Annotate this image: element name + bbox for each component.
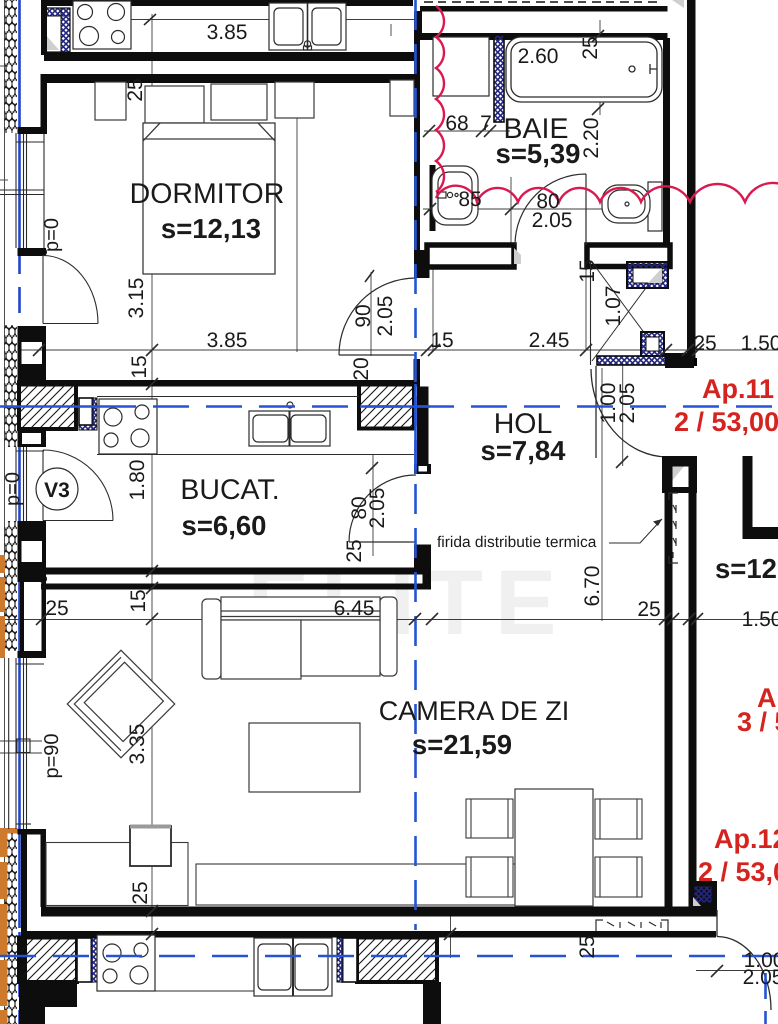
svg-text:3.35: 3.35 xyxy=(126,724,149,765)
svg-text:25: 25 xyxy=(693,332,716,355)
svg-text:6.70: 6.70 xyxy=(581,566,604,607)
svg-text:25: 25 xyxy=(637,598,660,621)
svg-text:Ap.11: Ap.11 xyxy=(702,374,774,404)
svg-text:68: 68 xyxy=(445,112,468,135)
svg-text:2.05: 2.05 xyxy=(616,383,639,424)
svg-text:s=12,13: s=12,13 xyxy=(161,213,261,244)
svg-text:2.05: 2.05 xyxy=(743,966,778,989)
svg-text:CAMERA DE ZI: CAMERA DE ZI xyxy=(379,696,570,726)
svg-text:85: 85 xyxy=(458,188,481,211)
svg-text:6.45: 6.45 xyxy=(334,597,375,620)
svg-text:s=5,39: s=5,39 xyxy=(496,138,581,169)
svg-text:s=7,84: s=7,84 xyxy=(481,435,567,466)
svg-text:3.85: 3.85 xyxy=(207,329,248,352)
svg-text:2.60: 2.60 xyxy=(518,45,559,68)
svg-text:BUCAT.: BUCAT. xyxy=(180,474,279,506)
svg-text:2.05: 2.05 xyxy=(366,488,389,529)
svg-text:25: 25 xyxy=(343,539,366,562)
svg-text:2.20: 2.20 xyxy=(580,118,603,159)
svg-text:p=0: p=0 xyxy=(2,472,24,506)
svg-text:2.05: 2.05 xyxy=(532,209,573,232)
svg-text:2.45: 2.45 xyxy=(529,329,570,352)
svg-text:3.15: 3.15 xyxy=(125,278,148,319)
svg-text:1.50: 1.50 xyxy=(741,332,778,355)
svg-text:Ap.12: Ap.12 xyxy=(714,824,778,854)
svg-text:25: 25 xyxy=(124,78,147,101)
svg-text:20: 20 xyxy=(350,357,373,380)
svg-text:25: 25 xyxy=(579,36,602,59)
svg-text:firida distributie termica: firida distributie termica xyxy=(437,534,597,551)
svg-text:15: 15 xyxy=(576,259,599,282)
svg-text:3.85: 3.85 xyxy=(207,21,248,44)
svg-text:25: 25 xyxy=(576,935,599,958)
svg-text:p=0: p=0 xyxy=(41,218,63,252)
svg-text:1.07: 1.07 xyxy=(602,286,625,327)
svg-text:s=12,: s=12, xyxy=(715,553,778,584)
svg-text:1.80: 1.80 xyxy=(126,460,149,501)
svg-text:V3: V3 xyxy=(44,479,70,502)
svg-text:p=90: p=90 xyxy=(41,733,63,778)
svg-text:s=21,59: s=21,59 xyxy=(412,729,512,760)
svg-text:25: 25 xyxy=(45,597,68,620)
svg-text:2 / 53,00: 2 / 53,00 xyxy=(674,407,778,437)
svg-text:2 / 53,0: 2 / 53,0 xyxy=(698,857,778,887)
svg-text:15: 15 xyxy=(128,355,151,378)
svg-text:3 / 5: 3 / 5 xyxy=(737,707,778,737)
svg-text:25: 25 xyxy=(129,881,152,904)
svg-text:15: 15 xyxy=(430,329,453,352)
svg-text:15: 15 xyxy=(127,589,150,612)
svg-text:90: 90 xyxy=(352,304,375,327)
svg-text:2.05: 2.05 xyxy=(374,296,397,337)
svg-text:1.50: 1.50 xyxy=(742,608,778,631)
svg-text:DORMITOR: DORMITOR xyxy=(130,178,285,210)
svg-text:7: 7 xyxy=(480,112,492,135)
svg-text:s=6,60: s=6,60 xyxy=(182,510,267,541)
